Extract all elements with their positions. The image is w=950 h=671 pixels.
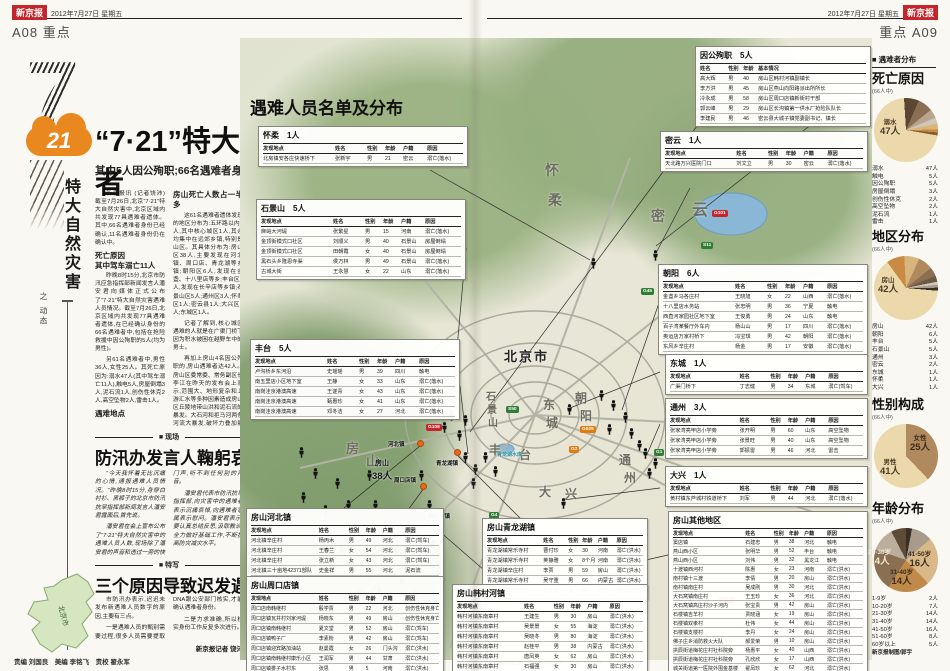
table-cell: 郝爱荣	[745, 637, 774, 646]
table-head: 发现地点姓名性别年龄户籍原因	[251, 526, 439, 536]
table-cell: 大石窝镇高庄村沙子河内	[673, 601, 745, 610]
table-row: 燕山西小区刘伟男32黑龙江触电	[673, 556, 863, 565]
table-cell: 唐凤英	[524, 652, 554, 662]
table-cell: 雷击	[828, 446, 863, 456]
table-cell: 溺亡(洪水)	[610, 612, 644, 622]
victim-person-icon	[462, 452, 469, 463]
table-cell: 黄村镇东芦城村铁道桥下	[670, 494, 739, 504]
table-cell: 女	[349, 556, 366, 566]
chart-地区分布: 地区分布(66人中)房山42人房山42人朝阳6人丰台5人石景山5人通州3人密云2…	[872, 226, 942, 393]
victim-table-huairou: 怀柔 1人发现地点姓名性别年龄户籍原因北房镇安各庄快速桥下张新宇男21密云溺亡(…	[258, 126, 468, 167]
table-cell: 李倩	[745, 574, 774, 583]
column-header: 户籍	[383, 526, 406, 536]
left-page-label: A08 重点	[12, 22, 71, 41]
table-cell: 24	[785, 312, 803, 322]
table-cell: 史金祥	[319, 566, 349, 576]
victim-table-title: 丰台 5人	[255, 343, 455, 354]
district-label: 怀	[545, 160, 559, 180]
note-district: 房山	[372, 458, 392, 468]
table-cell: 张新宇	[335, 154, 367, 164]
column-header: 姓名	[319, 594, 349, 604]
table-cell: 河北	[383, 536, 406, 546]
table-cell: 河北镇三十亩地42371部队	[251, 566, 319, 576]
table-row: 周口店镇娄子水村东张思男5河南溺亡(洪水)	[251, 664, 439, 671]
table-cell: 吴景景	[524, 622, 554, 632]
table-cell: 河北	[805, 494, 828, 504]
table-cell: 王润军	[319, 654, 349, 664]
victim-table: 发现地点姓名性别年龄户籍原因金盏乡马各庄村王晓旭女22山西溺亡(落水)十八里店水…	[663, 281, 863, 352]
column-header: 年龄	[385, 144, 403, 154]
table-body: 周口店南韩继村殷学贾男22河北创伤性休克身亡周口店镇瓦井村刘家河堤杨晓东男49房…	[251, 604, 439, 671]
victim-table-zhoukoudian: 房山周口店镇发现地点姓名性别年龄户籍原因周口店南韩继村殷学贾男22河北创伤性休克…	[246, 576, 444, 671]
table-cell: 溺亡(落水)	[425, 257, 461, 267]
table-cell: 溺亡(落水)	[427, 154, 463, 164]
table-cell: 韩村河镇东南章村	[457, 652, 524, 662]
table-cell: 男	[349, 624, 366, 634]
column-header: 姓名	[335, 144, 367, 154]
victim-table-qita: 房山其他地区发现地点姓名性别年龄户籍原因窦店镇石建忠男38河北触电燕山西小区张明…	[668, 511, 868, 671]
table-cell: 燕山西小区	[673, 556, 745, 565]
table-cell: 男	[349, 614, 366, 624]
table-cell: 周口店镇鸭子厂	[251, 634, 319, 644]
column-header: 性别	[767, 282, 785, 292]
table-cell: 房山	[804, 601, 827, 610]
victim-table-title: 房山周口店镇	[251, 580, 439, 591]
table-cell: 门头沟	[383, 644, 406, 654]
table-cell: 女	[359, 387, 377, 397]
table-cell: 55	[570, 622, 587, 632]
table-cell: 男	[554, 612, 571, 622]
pie-inner-label: 21-30岁14人	[868, 550, 891, 567]
column-header: 发现地点	[673, 529, 745, 538]
victim-table-title: 房山韩村河镇	[457, 588, 643, 599]
table-cell: 安徽	[803, 342, 827, 352]
header-row: 姓名性别年龄基本情况	[700, 64, 866, 74]
table-cell: 36	[789, 592, 804, 601]
table-cell: 溺亡(落水)	[425, 267, 461, 277]
table-row: 韩村河镇东南章村石福强女30房山溺亡(洪水)	[457, 662, 643, 671]
table-row: 南岗洼京港澳高速邓冬洁女27河北溺亡(落水)	[255, 407, 455, 417]
table-head: 发现地点姓名性别年龄户籍原因	[663, 282, 863, 292]
column-header: 发现地点	[263, 144, 335, 154]
table-cell: 女	[767, 292, 785, 302]
table-row: 拱辰街道梅花庄村社科院旁杨惠平女40山西溺亡(洪水)	[673, 646, 863, 655]
table-cell: 溺亡(洪水)	[827, 610, 863, 619]
table-row: 周口店南韩继村殷学贾男22河北创伤性休克身亡	[251, 604, 439, 614]
table-body: 广渠门桥下丁志健男34东城溺亡(驾车)	[670, 382, 863, 392]
table-cell: 溺亡(落水)	[419, 387, 455, 397]
table-cell: 黑龙江	[804, 556, 827, 565]
table-cell: 女	[774, 664, 789, 671]
table-cell: 房山	[383, 624, 406, 634]
table-row: 周口店镇迎宾路加油站赵曼霞女26门头沟溺亡(洪水)	[251, 644, 439, 654]
column-header: 原因	[405, 526, 439, 536]
table-cell: 燕山西小区	[673, 547, 745, 556]
victim-person-icon	[334, 478, 341, 489]
table-cell: 房山	[587, 652, 609, 662]
cloud-21-number: 21	[26, 128, 92, 154]
table-cell: 广渠门桥下	[670, 382, 739, 392]
table-cell: 女	[774, 628, 789, 637]
chart-subtitle: (66人中)	[872, 413, 942, 421]
table-cell: 密云县大城子镇党委副书记、镇长	[758, 114, 866, 124]
table-cell: 溺亡(洪水)	[827, 574, 863, 583]
column-header: 户籍	[383, 594, 406, 604]
table-cell: 溺亡(洪水)	[827, 646, 863, 655]
legend-value: 2人	[929, 204, 938, 212]
map-small-label: 青龙湖水库	[497, 451, 522, 458]
column-header: 年龄	[743, 64, 758, 74]
infographic-credit: 新京报制图/郭宇	[872, 648, 912, 656]
table-cell: 溺亡(洪水)	[405, 644, 439, 654]
town-dot-青龙湖镇	[454, 449, 461, 456]
table-cell: 房屋倒塌	[425, 237, 461, 247]
table-cell: 溺亡(洪水)	[827, 664, 863, 671]
table-cell: 青龙湖镇常乐寺村	[487, 556, 543, 566]
column-header: 性别	[365, 217, 383, 227]
table-cell: 夏文堂	[319, 624, 349, 634]
table-cell: 韩村河镇东南章村	[457, 642, 524, 652]
table-row: 西直河家园社区地下室王俊勇男24山东触电	[663, 312, 863, 322]
legend-label: 石景山	[872, 347, 889, 355]
table-cell: 女	[554, 652, 571, 662]
table-cell: 43	[366, 556, 383, 566]
chart-subtitle: (66人中)	[872, 517, 942, 525]
table-cell: 男	[349, 604, 366, 614]
table-cell: 男	[774, 601, 789, 610]
table-cell: 高空坠物	[828, 426, 863, 436]
article-body: 新京报讯 (记者饶沛) 截至7月26日,北京“7·21”特大自然灾害中,北京区域…	[95, 190, 243, 430]
victim-table-title: 房山河北镇	[251, 512, 439, 523]
pie-inner-label: 41-50岁16人	[908, 552, 931, 569]
right-page-label: 重点 A09	[879, 22, 938, 41]
table-cell: 溺亡(落水)	[425, 227, 461, 237]
table-cell: 南岗洼京港澳高速	[255, 397, 327, 407]
chart-title: 性别构成	[872, 394, 942, 413]
table-cell: 张忠明	[735, 302, 767, 312]
table-row: 河北镇三十亩地42371部队史金祥男55河北泥石流	[251, 566, 439, 576]
victim-person-icon	[560, 498, 567, 509]
pie-label-value: 47人	[880, 127, 900, 137]
table-cell: 大石窝镇南庄村	[673, 592, 745, 601]
table-cell: 溺亡(落水)	[419, 407, 455, 417]
table-cell: 男	[770, 446, 787, 456]
legend-label: 高空坠物	[872, 204, 895, 212]
victim-table: 发现地点姓名性别年龄户籍原因韩村河镇东南章村王建生男30房山溺亡(洪水)韩村河镇…	[457, 601, 643, 671]
table-cell: 刘顺义	[333, 237, 365, 247]
table-row: 李建民男46密云县大城子镇党委副书记、镇长	[700, 114, 866, 124]
table-cell: 韩村河镇东南章村	[457, 632, 524, 642]
table-cell: 李贾	[543, 566, 568, 576]
legend-value: 3人	[929, 189, 938, 197]
table-row: 冷永成男58房山区周口店镇新街村干部	[700, 94, 866, 104]
table-cell: 52	[789, 547, 804, 556]
table-cell: 男	[349, 536, 366, 546]
legend-label: 1-9岁	[872, 596, 886, 604]
table-cell: 22	[366, 604, 383, 614]
table-cell: 河北	[804, 538, 827, 547]
victim-person-icon	[622, 412, 629, 423]
table-cell: 房山区韩村河镇副镇长	[758, 74, 866, 84]
table-cell: 陈惠	[745, 565, 774, 574]
table-cell: 溺亡(洪水)	[610, 622, 644, 632]
table-cell: 泥石流	[405, 566, 439, 576]
table-cell: 溺亡(洪水)	[405, 664, 439, 671]
table-row: 张家湾亮甲店小学旁张开明男60山东高空坠物	[670, 426, 863, 436]
table-cell: 韩村河镇东南章村	[457, 662, 524, 671]
table-cell: 男	[774, 538, 789, 547]
table-cell: 麻峪大河堤	[261, 227, 333, 237]
table-cell: 男	[770, 426, 787, 436]
legend-value: 5人	[929, 339, 938, 347]
table-cell: 河南	[383, 664, 406, 671]
victim-person-icon	[642, 448, 649, 459]
victim-table: 发现地点姓名性别年龄户籍原因黄村镇东芦城村铁道桥下刘军男44河北溺亡(落水)	[670, 483, 863, 504]
column-header: 性别	[728, 64, 743, 74]
table-cell: 溺亡(洪水)	[616, 546, 643, 556]
table-cell: 石楼镇双孝村	[673, 619, 745, 628]
chart-title: 地区分布	[872, 226, 942, 245]
table-cell: 女	[365, 267, 383, 277]
table-body: 天北路万兴医院门口刘文立男30密云溺亡(落水)	[665, 159, 863, 169]
column-header: 原因	[427, 144, 463, 154]
table-row: 韩村河镇东南章村赵桂平男38内蒙古溺亡(洪水)	[457, 642, 643, 652]
table-cell: 杜伟	[745, 619, 774, 628]
table-cell: 46	[788, 446, 805, 456]
victim-stats-sidebar: ■ 遇难者分布 死亡原因(66人中)溺水47人溺水47人触电5人因公殉职5人房屋…	[872, 0, 942, 671]
victim-table-title: 朝阳 6人	[663, 268, 863, 279]
table-row: 青龙湖镇常乐寺村曹付珍女30河南溺亡(洪水)	[487, 546, 643, 556]
table-cell: 触电	[827, 302, 863, 312]
table-cell: 女	[774, 619, 789, 628]
callout-leader-line	[622, 300, 660, 410]
column-header: 基本情况	[758, 64, 866, 74]
table-cell: 丰台	[804, 547, 827, 556]
table-cell: 52	[366, 624, 383, 634]
table-cell: 王玉珍	[745, 592, 774, 601]
table-head: 发现地点姓名性别年龄户籍原因	[487, 536, 643, 546]
table-cell: 36	[785, 302, 803, 312]
column-header: 姓名	[700, 64, 728, 74]
victim-table: 发现地点姓名性别年龄户籍原因北房镇安各庄快速桥下张新宇男21密云溺亡(落水)	[263, 143, 463, 164]
victim-person-icon	[652, 250, 659, 261]
table-body: 麻峪大河堤张繁星男15河南溺亡(落水)金顶街模式口社区刘顺义男40石景山房屋倒塌…	[261, 227, 461, 277]
table-cell: 周口店镇娄子水村东	[251, 664, 319, 671]
table-cell: 张家湾亮甲店小学旁	[670, 426, 739, 436]
table-cell: 男	[365, 227, 383, 237]
table-cell: 河南	[804, 565, 827, 574]
table-cell: 溺亡(洪水)	[827, 628, 863, 637]
table-cell: 触电	[419, 367, 455, 377]
table-cell: 卢沟桥乡东河沿	[255, 367, 327, 377]
table-cell: 房山区燕山向阳路派出所所长	[758, 84, 866, 94]
table-cell: 张开明	[739, 426, 770, 436]
column-header: 发现地点	[261, 217, 333, 227]
table-cell: 女	[554, 662, 571, 671]
table-cell: 山东	[805, 426, 828, 436]
article-paragraph: 昨晚8时15分,北京市防汛应急指挥部新闻发言人潘安君向媒体正式公布了“7·21”…	[95, 272, 165, 353]
table-cell: 溺亡(落水)	[827, 159, 863, 169]
header-row: 发现地点姓名性别年龄户籍原因	[670, 372, 863, 382]
victim-person-icon	[441, 422, 448, 433]
table-cell: 东城	[805, 382, 828, 392]
table-cell: 触电	[827, 312, 863, 322]
table-cell: 赵曼霞	[319, 644, 349, 654]
table-cell: 女	[774, 646, 789, 655]
table-cell: 刘文立	[736, 159, 768, 169]
table-head: 发现地点姓名性别年龄户籍原因	[263, 144, 463, 154]
column-header: 户籍	[395, 357, 419, 367]
table-cell: 翟凤珍	[745, 664, 774, 671]
table-row: 高大辉男40房山区韩村河镇副镇长	[700, 74, 866, 84]
pie-inner-label: 溺水47人	[880, 120, 900, 137]
pie-inner-label: 房山42人	[878, 278, 898, 295]
victim-person-icon	[598, 390, 605, 401]
table-head: 发现地点姓名性别年龄户籍原因	[457, 602, 643, 612]
legend-row: 高空坠物2人	[872, 204, 938, 212]
column-header: 发现地点	[670, 372, 739, 382]
table-cell: 42	[785, 332, 803, 342]
table-cell: 杨惠平	[745, 646, 774, 655]
table-row: 麻峪大河堤张繁星男15河南溺亡(落水)	[261, 227, 461, 237]
table-cell: 周口店镇迎宾路加油站	[251, 644, 319, 654]
table-cell: 房山	[383, 614, 406, 624]
date-label: 2012年7月27日 星期五	[828, 9, 899, 19]
table-cell: 溺亡(驾车)	[405, 546, 439, 556]
brand-logo: 新京报	[12, 5, 47, 20]
header-row: 发现地点姓名性别年龄户籍原因	[457, 602, 643, 612]
article-paragraph: 这61名遇难者遗体发现的地区分布为:五环路以内6人,其中核心城区1人,其余均集中…	[173, 212, 243, 317]
table-cell: 河北	[804, 592, 827, 601]
victim-table: 姓名性别年龄基本情况高大辉男40房山区韩村河镇副镇长李方洪男45房山区燕山向阳路…	[700, 63, 866, 124]
table-cell: 创伤性休克身亡	[405, 604, 439, 614]
table-cell: 房山	[804, 628, 827, 637]
table-cell: 殷学贾	[319, 604, 349, 614]
table-cell: 海淀	[587, 632, 609, 642]
table-cell: 金顶街模式口社区	[261, 237, 333, 247]
table-cell: 38	[789, 538, 804, 547]
table-cell: 河北	[804, 583, 827, 592]
table-body: 河北镇辛庄村杨丙木男49河北溺亡(驾车)河北镇辛庄村王春兰女54河北溺亡(驾车)…	[251, 536, 439, 576]
table-row: 李方洪男45房山区燕山向阳路派出所所长	[700, 84, 866, 94]
table-cell: 石景山	[401, 257, 425, 267]
table-row: 百子湾某餐厅外车内杨山山男17四川溺亡(落水)	[663, 322, 863, 332]
header-row: 发现地点姓名性别年龄户籍原因	[487, 536, 643, 546]
table-cell: 溺亡(落水)	[419, 397, 455, 407]
victim-table: 发现地点姓名性别年龄户籍原因周口店南韩继村殷学贾男22河北创伤性休克身亡周口店镇…	[251, 593, 439, 671]
pie-label-value: 41人	[880, 467, 900, 477]
table-cell: 房山区长沟镇第一供水厂抢险队队长	[758, 104, 866, 114]
victim-person-icon	[470, 478, 477, 489]
article-subhead-line1: 死亡原因	[95, 251, 165, 261]
table-cell: 男	[770, 494, 787, 504]
table-cell: 男	[349, 566, 366, 576]
table-cell: 河北	[395, 407, 419, 417]
table-cell: 男	[767, 322, 785, 332]
table-cell: 男	[774, 574, 789, 583]
pie-label-value: 14人	[868, 557, 891, 567]
column-header: 姓名	[327, 357, 359, 367]
table-cell: 河北镇辛庄村	[251, 546, 319, 556]
victim-person-icon	[482, 452, 489, 463]
district-label: 通	[619, 451, 631, 468]
table-cell: 百子湾某餐厅外车内	[663, 322, 735, 332]
table-cell: 佛子庄乡消防救火大队	[673, 637, 745, 646]
table-body: 黄村镇东芦城村铁道桥下刘军男44河北溺亡(落水)	[670, 494, 863, 504]
table-cell: 甄惠珍	[327, 397, 359, 407]
table-row: 佛子庄乡消防救火大队郝爱荣男10房山溺亡(洪水)	[673, 637, 863, 646]
chart-legend: 房山42人朝阳6人丰台5人石景山5人通州3人密云2人东城1人怀柔1人大兴1人	[872, 324, 938, 393]
table-cell: 朝阳	[803, 332, 827, 342]
table-cell: 史瑶瑶	[327, 367, 359, 377]
victim-table: 发现地点姓名性别年龄户籍原因麻峪大河堤张繁星男15河南溺亡(落水)金顶街模式口社…	[261, 216, 461, 277]
column-header: 发现地点	[670, 484, 739, 494]
table-row: 北房镇安各庄快速桥下张新宇男21密云溺亡(落水)	[263, 154, 463, 164]
legend-value: 1人	[929, 377, 938, 385]
table-cell: 山东	[395, 387, 419, 397]
legend-label: 溺水	[872, 166, 884, 174]
table-cell: 石景山	[401, 237, 425, 247]
table-cell: 34	[788, 382, 805, 392]
column-header: 发现地点	[251, 526, 319, 536]
column-header: 发现地点	[251, 594, 319, 604]
table-head: 发现地点姓名性别年龄户籍原因	[670, 484, 863, 494]
table-cell: 女	[365, 247, 383, 257]
header-row: 发现地点姓名性别年龄户籍原因	[670, 416, 863, 426]
table-cell: 触电	[827, 538, 863, 547]
victim-table: 发现地点姓名性别年龄户籍原因窦店镇石建忠男38河北触电燕山西小区张明华男52丰台…	[673, 528, 863, 671]
table-cell: 房山	[598, 566, 617, 576]
article-paragraph: 另61名遇难者中,男性36人,女性25人。其死亡原因为:溺水47人(其中驾车溺亡…	[95, 356, 165, 405]
table-cell: 27	[377, 407, 395, 417]
table-cell: 男	[367, 154, 385, 164]
victim-person-icon	[566, 404, 573, 415]
table-cell: 河南	[401, 227, 425, 237]
table-cell: 43	[377, 387, 395, 397]
table-row: 大石窝镇高庄村沙子河内张宝贵男42房山溺亡(洪水)	[673, 601, 863, 610]
column-header: 性别	[359, 357, 377, 367]
table-cell: 溺亡(落水)	[828, 494, 863, 504]
table-cell: 房山	[383, 634, 406, 644]
table-cell: 38	[570, 642, 587, 652]
left-credits: 责编 刘国良 美编 李铭飞 责校 翟永军	[14, 656, 130, 666]
table-cell: 男	[767, 342, 785, 352]
table-cell: 金盏乡马各庄村	[663, 292, 735, 302]
table-cell: 44	[789, 619, 804, 628]
table-cell: 杨山山	[735, 322, 767, 332]
column-header: 姓名	[543, 536, 568, 546]
victim-table-daxing: 大兴 1人发现地点姓名性别年龄户籍原因黄村镇东芦城村铁道桥下刘军男44河北溺亡(…	[665, 466, 868, 507]
legend-label: 因公殉职	[872, 181, 895, 189]
scene-section-tag: ■ 现场	[95, 432, 243, 442]
table-cell: 张家湾亮甲店小学旁	[670, 446, 739, 456]
table-body: 北房镇安各庄快速桥下张新宇男21密云溺亡(落水)	[263, 154, 463, 164]
table-cell: 40	[743, 74, 758, 84]
article-paragraph: 新京报讯 (记者饶沛) 截至7月26日,北京“7·21”特大自然灾害中,北京区域…	[95, 190, 165, 247]
district-label: 柔	[548, 190, 562, 210]
table-head: 发现地点姓名性别年龄户籍原因	[673, 529, 863, 538]
victim-table-title: 房山其他地区	[673, 515, 863, 526]
table-cell: 青龙湖镇辛庄村	[487, 566, 543, 576]
table-cell: 城关街道第一医院外围金基楼	[673, 664, 745, 671]
table-row: 周口店镇瓦井村刘家河堤杨晓东男49房山创伤性休克身亡	[251, 614, 439, 624]
table-head: 姓名性别年龄基本情况	[700, 64, 866, 74]
town-label-周口店镇: 周口店镇	[394, 476, 416, 484]
table-cell: 河北	[383, 566, 406, 576]
table-cell: 河北	[804, 664, 827, 671]
table-cell: 杨丙木	[319, 536, 349, 546]
legend-value: 5人	[929, 181, 938, 189]
